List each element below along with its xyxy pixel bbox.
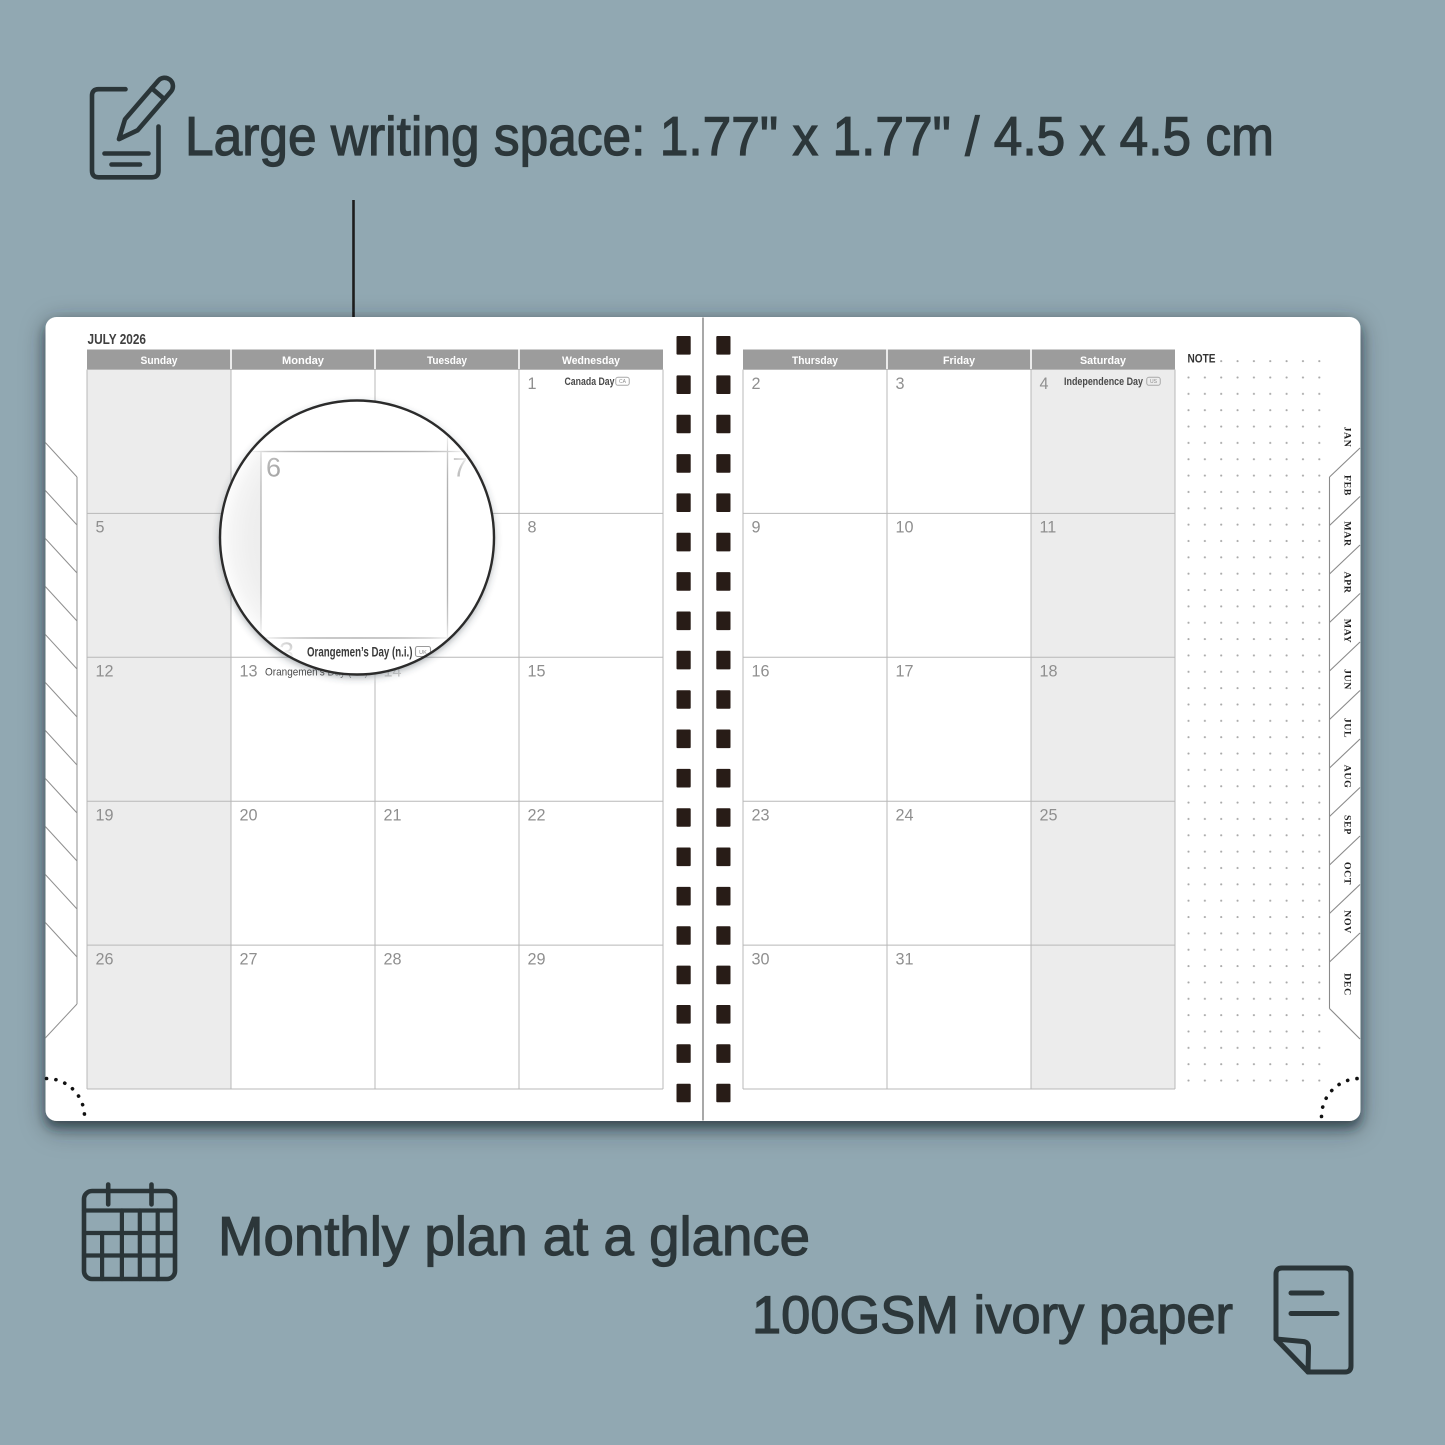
- svg-text:Saturday: Saturday: [1080, 355, 1127, 367]
- svg-text:27: 27: [240, 950, 258, 968]
- svg-text:4: 4: [1040, 375, 1049, 393]
- svg-text:26: 26: [96, 950, 114, 968]
- svg-text:30: 30: [752, 950, 770, 968]
- svg-text:Tuesday: Tuesday: [427, 355, 468, 367]
- svg-text:1: 1: [528, 375, 537, 393]
- svg-text:NOTE: NOTE: [1188, 352, 1216, 366]
- svg-text:Thursday: Thursday: [792, 355, 839, 367]
- svg-text:NOV: NOV: [1342, 910, 1353, 934]
- svg-text:FEB: FEB: [1342, 475, 1353, 496]
- svg-text:13: 13: [240, 663, 258, 681]
- svg-text:20: 20: [240, 807, 258, 825]
- svg-text:AUG: AUG: [1342, 765, 1353, 789]
- svg-text:23: 23: [752, 807, 770, 825]
- svg-text:22: 22: [528, 807, 546, 825]
- svg-text:JUN: JUN: [1342, 669, 1353, 690]
- svg-text:Independence Day: Independence Day: [1064, 376, 1143, 388]
- svg-text:MAY: MAY: [1342, 619, 1353, 643]
- svg-text:Large writing space: 1.77" x 1: Large writing space: 1.77" x 1.77" / 4.5…: [185, 105, 1274, 167]
- svg-text:JAN: JAN: [1342, 426, 1353, 447]
- svg-text:15: 15: [528, 663, 546, 681]
- svg-text:DEC: DEC: [1342, 973, 1353, 996]
- svg-text:5: 5: [96, 519, 105, 537]
- svg-text:US: US: [1150, 379, 1158, 385]
- svg-text:Canada Day: Canada Day: [565, 376, 615, 388]
- svg-text:Monthly plan at a glance: Monthly plan at a glance: [218, 1205, 810, 1267]
- svg-text:2: 2: [752, 375, 761, 393]
- svg-text:MAR: MAR: [1342, 521, 1353, 547]
- svg-text:3: 3: [896, 375, 905, 393]
- svg-text:9: 9: [752, 519, 761, 537]
- svg-text:Orangemen’s Day (n.i.): Orangemen’s Day (n.i.): [307, 644, 413, 660]
- svg-text:Wednesday: Wednesday: [562, 355, 621, 367]
- svg-text:JULY 2026: JULY 2026: [88, 332, 147, 348]
- svg-text:Friday: Friday: [943, 355, 976, 367]
- svg-text:Monday: Monday: [282, 355, 325, 367]
- svg-text:24: 24: [896, 807, 914, 825]
- svg-text:8: 8: [528, 519, 537, 537]
- svg-text:17: 17: [896, 663, 914, 681]
- svg-text:APR: APR: [1342, 571, 1353, 593]
- svg-text:10: 10: [896, 519, 914, 537]
- svg-text:21: 21: [384, 807, 402, 825]
- svg-text:12: 12: [96, 663, 114, 681]
- svg-text:19: 19: [96, 807, 114, 825]
- svg-text:100GSM ivory paper: 100GSM ivory paper: [752, 1286, 1233, 1345]
- svg-text:SEP: SEP: [1342, 815, 1353, 835]
- svg-text:OCT: OCT: [1342, 862, 1353, 885]
- svg-text:16: 16: [752, 663, 770, 681]
- svg-text:28: 28: [384, 950, 402, 968]
- svg-text:CA: CA: [619, 379, 627, 385]
- svg-text:11: 11: [1040, 519, 1057, 537]
- svg-text:JUL: JUL: [1342, 718, 1353, 738]
- svg-text:31: 31: [896, 950, 914, 968]
- svg-text:29: 29: [528, 950, 546, 968]
- svg-text:25: 25: [1040, 807, 1058, 825]
- svg-text:18: 18: [1040, 663, 1058, 681]
- svg-text:Sunday: Sunday: [141, 355, 179, 367]
